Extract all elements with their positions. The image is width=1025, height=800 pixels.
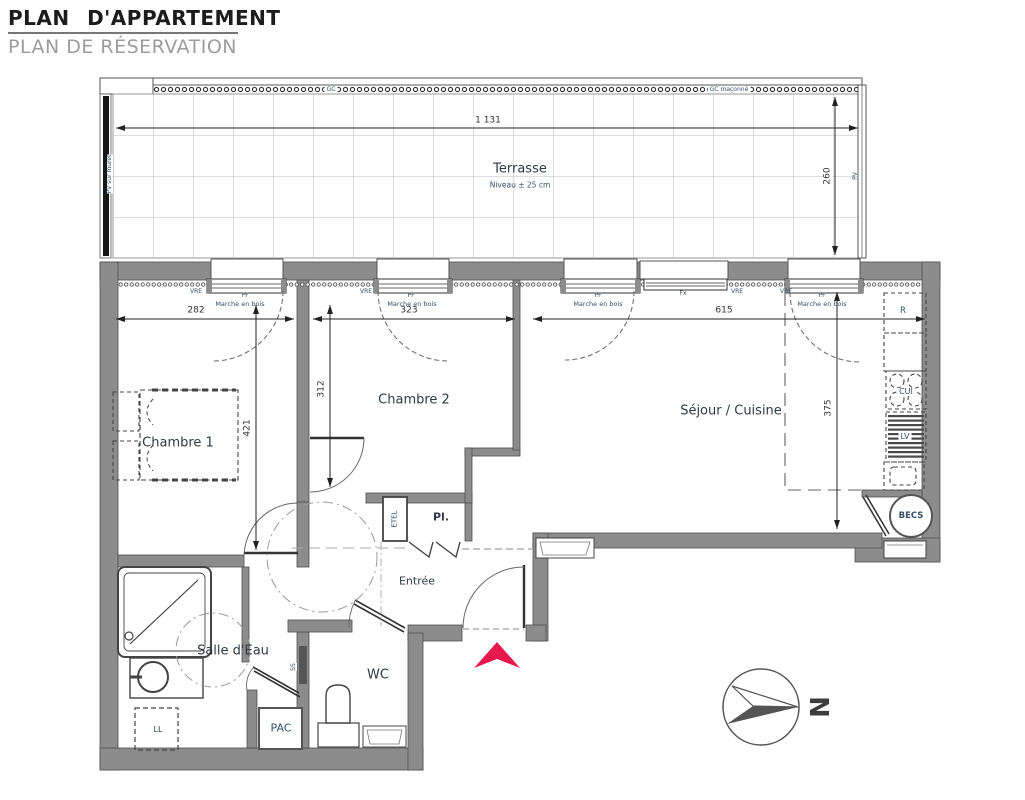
pf-label-4: PF <box>818 293 825 299</box>
window-living-doorwindow <box>561 259 640 293</box>
bedroom1-width-dim: 282 <box>185 307 206 316</box>
title-underline <box>8 32 238 34</box>
vre-label-2: VRE <box>360 289 372 295</box>
terrace-guardrail-band <box>153 85 862 94</box>
pf-label-3: PF <box>594 293 601 299</box>
fixed-pane-label: Fx <box>679 291 686 297</box>
pv-muret-label: PV sur muret <box>107 155 113 194</box>
wood-step-label-3: Marche en bois <box>573 301 622 308</box>
towel-radiator <box>299 646 307 684</box>
compass <box>723 669 799 745</box>
wc-label: WC <box>367 669 389 682</box>
window-living-fixed <box>640 261 728 290</box>
closet-label: Pl. <box>433 512 449 523</box>
bedroom2-width-dim: 323 <box>398 307 419 316</box>
wall-west <box>100 262 118 770</box>
vre-label-4: VRE <box>780 289 792 295</box>
dishwasher-label: LV <box>898 433 911 441</box>
terrace-level-note: Niveau ± 25 cm <box>490 181 551 189</box>
vre-label-1: VRE <box>190 289 202 295</box>
bedroom1-depth-dim: 421 <box>244 417 253 438</box>
entrance-arrow <box>474 642 520 668</box>
window-bedroom1 <box>207 259 286 293</box>
cooktop-label: CUI <box>897 388 915 396</box>
bedroom1-label: Chambre 1 <box>142 437 214 450</box>
towel-rail-label: SS <box>291 663 297 671</box>
window-bedroom2 <box>374 259 452 293</box>
wall-wc-north <box>288 620 352 632</box>
living-kitchen-label: Séjour / Cuisine <box>680 405 782 418</box>
compass-needle-outline <box>732 686 798 707</box>
door-entrance <box>463 565 524 629</box>
wall-bedroom1-bedroom2 <box>297 280 309 502</box>
door-bedroom2 <box>310 438 364 492</box>
wood-step-label-1: Marche en bois <box>215 301 264 308</box>
gc-label: GC <box>325 87 338 93</box>
wood-step-label-4: Marche en bois <box>797 301 846 308</box>
terrace-width-dim: 1 131 <box>473 117 503 126</box>
vre-label-3: VRE <box>731 289 743 295</box>
walls <box>100 262 940 770</box>
terrace-depth-dim: 260 <box>824 165 833 186</box>
compass-north-label: N <box>803 696 833 718</box>
page-subtitle: PLAN DE RÉSERVATION <box>8 36 237 58</box>
heat-pump-label: PAC <box>271 723 292 734</box>
doors <box>244 438 889 697</box>
kitchen-sink <box>884 462 924 490</box>
wall-bedroom2-south <box>366 493 472 503</box>
wall-south <box>100 748 423 770</box>
washbasin <box>130 658 203 698</box>
door-closet-bifold <box>409 542 532 557</box>
window-kitchen <box>785 259 863 293</box>
gc-masonry-label: GC maçonné <box>708 87 751 93</box>
elec-panel-label: ETEL <box>392 510 399 527</box>
door-becs-closet <box>863 495 889 536</box>
bedroom2-label: Chambre 2 <box>378 394 450 407</box>
wall-bedroom2-living <box>513 280 520 450</box>
kitchen-zone-boundary <box>785 293 884 490</box>
wall-entry-south-right <box>526 625 546 641</box>
page-title: PLAN D'APPARTEMENT <box>8 6 281 30</box>
kitchen-counter <box>884 333 926 371</box>
water-heater-label: BECS <box>899 512 924 521</box>
dimension-lines <box>116 292 925 550</box>
window-swing-arcs <box>213 291 860 362</box>
entry-label: Entrée <box>399 576 435 587</box>
floor-plan-drawing <box>0 0 1025 800</box>
bathroom-label: Salle d'Eau <box>197 645 269 658</box>
door-wc <box>349 600 405 632</box>
fridge-label: R <box>898 307 908 316</box>
living-depth-dim: 375 <box>825 397 834 418</box>
south-openings <box>363 538 926 747</box>
pf-label-2: PF <box>407 293 414 299</box>
living-width-dim: 615 <box>713 307 734 316</box>
wall-bedroom1-bathroom <box>118 555 244 567</box>
toilet <box>318 685 359 747</box>
pf-label-1: PF <box>241 293 248 299</box>
terrace <box>100 78 866 258</box>
door-bedroom1 <box>244 503 298 556</box>
window-becs-south <box>884 541 926 558</box>
terrace-label: Terrasse <box>493 163 547 176</box>
compass-needle <box>727 706 798 724</box>
terrace-corner-pillar <box>100 78 153 94</box>
floor-plan-page: PLAN D'APPARTEMENT PLAN DE RÉSERVATION T… <box>0 0 1025 800</box>
bedroom2-depth-dim: 312 <box>318 378 327 399</box>
pv-label: PV <box>853 172 859 180</box>
washer-label: LL <box>154 726 163 734</box>
